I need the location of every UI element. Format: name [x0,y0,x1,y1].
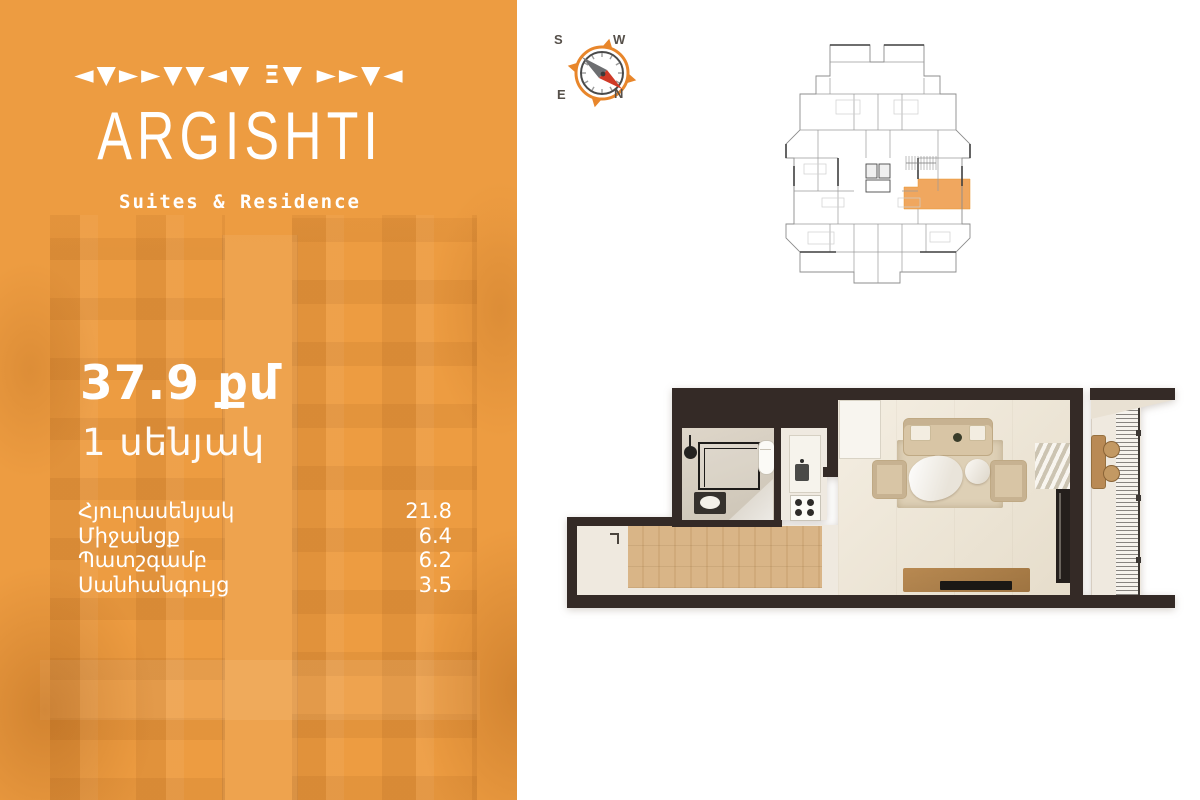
shower-glass-line [704,448,757,487]
table-row: Հյուրասենյակ 21.8 [78,499,452,524]
room-areas-table: Հյուրասենյակ 21.8 Միջանցք 6.4 Պատշգամբ 6… [78,499,452,597]
compass-label-w: W [613,32,625,47]
unit-area: 37.9 քմ [80,356,280,411]
coffee-table-small [965,459,990,484]
room-value: 3.5 [419,573,452,598]
railing-post [1136,430,1141,436]
brand-name: ARGISHTI [0,98,480,176]
stove-burner [795,509,802,516]
apartment-floor-plan [567,385,1175,615]
wall-left-main [672,388,682,525]
toilet-lid-line [760,449,771,450]
railing-post [1136,495,1141,501]
compass-label-n: N [614,86,623,101]
compass-rose-icon [566,37,638,109]
armchair-right [990,460,1027,502]
room-value: 6.2 [419,548,452,573]
wall-kitchen-living-divider [827,388,838,473]
room-value: 6.4 [419,524,452,549]
bathroom-sink-bowl [700,496,720,509]
stove-burner [807,499,814,506]
armchair-left [872,460,907,499]
wardrobe-cabinet [839,400,881,459]
entry-door-mark [610,533,619,544]
stove-burner [807,509,814,516]
wall-living-right [1070,388,1083,595]
kitchen-sink [795,464,809,481]
room-label: Միջանցք [78,524,180,549]
wall-top-balcony [1090,388,1175,400]
balcony-decking-hatch [1116,400,1138,595]
compass-label-e: E [557,87,566,102]
wall-bath-kitchen-divider [774,428,781,527]
room-label: Պատշգամբ [78,548,207,573]
page: { "brand": { "cuneiform": "◄▼►►▼▼◄▼ Ξ▼ ►… [0,0,1200,800]
table-row: Միջանցք 6.4 [78,524,452,549]
table-row: Պատշգամբ 6.2 [78,548,452,573]
window-glass-line [1059,493,1061,579]
table-row: Սանհանգույց 3.5 [78,573,452,598]
balcony-table [1091,435,1106,489]
sofa-pillow [969,425,986,441]
room-label: Սանհանգույց [78,573,229,598]
curtain [1035,443,1070,489]
balcony-chair [1103,465,1120,482]
sofa-pillow [910,425,931,441]
hallway-wood-floor-joints [628,526,822,588]
toilet [758,440,775,475]
floor-key-plan-drawing [778,36,978,288]
compass-icon: S W E N [566,37,638,109]
wall-door-stub [823,467,838,477]
shower-head [684,446,697,459]
unit-area-unit: քմ [217,356,280,411]
floor-key-plan [778,36,978,288]
brand-tagline: Suites & Residence [0,191,480,213]
wall-service-block [672,388,837,428]
unit-rooms-count: 1 սենյակ [82,421,265,464]
brand-panel: ◄▼►►▼▼◄▼ Ξ▼ ►►▼◄ ARGISHTI Suites & Resid… [0,0,517,800]
stove-burner [795,499,802,506]
wall-bathroom-bottom [672,520,782,527]
room-label: Հյուրասենյակ [78,499,234,524]
wall-hallway-top [567,517,682,526]
balcony-chair [1103,441,1120,458]
unit-area-value: 37.9 [80,356,200,411]
railing-post [1136,557,1141,563]
kitchen-faucet [800,459,804,463]
kitchen-stove [790,495,821,521]
tv [940,581,1012,590]
highlighted-unit [904,179,970,209]
cuneiform-logo-icon: ◄▼►►▼▼◄▼ Ξ▼ ►►▼◄ [0,60,480,89]
compass-label-s: S [554,32,563,47]
sofa-decor-plant [953,433,962,442]
wall-bottom [567,595,1175,608]
room-value: 21.8 [405,499,452,524]
